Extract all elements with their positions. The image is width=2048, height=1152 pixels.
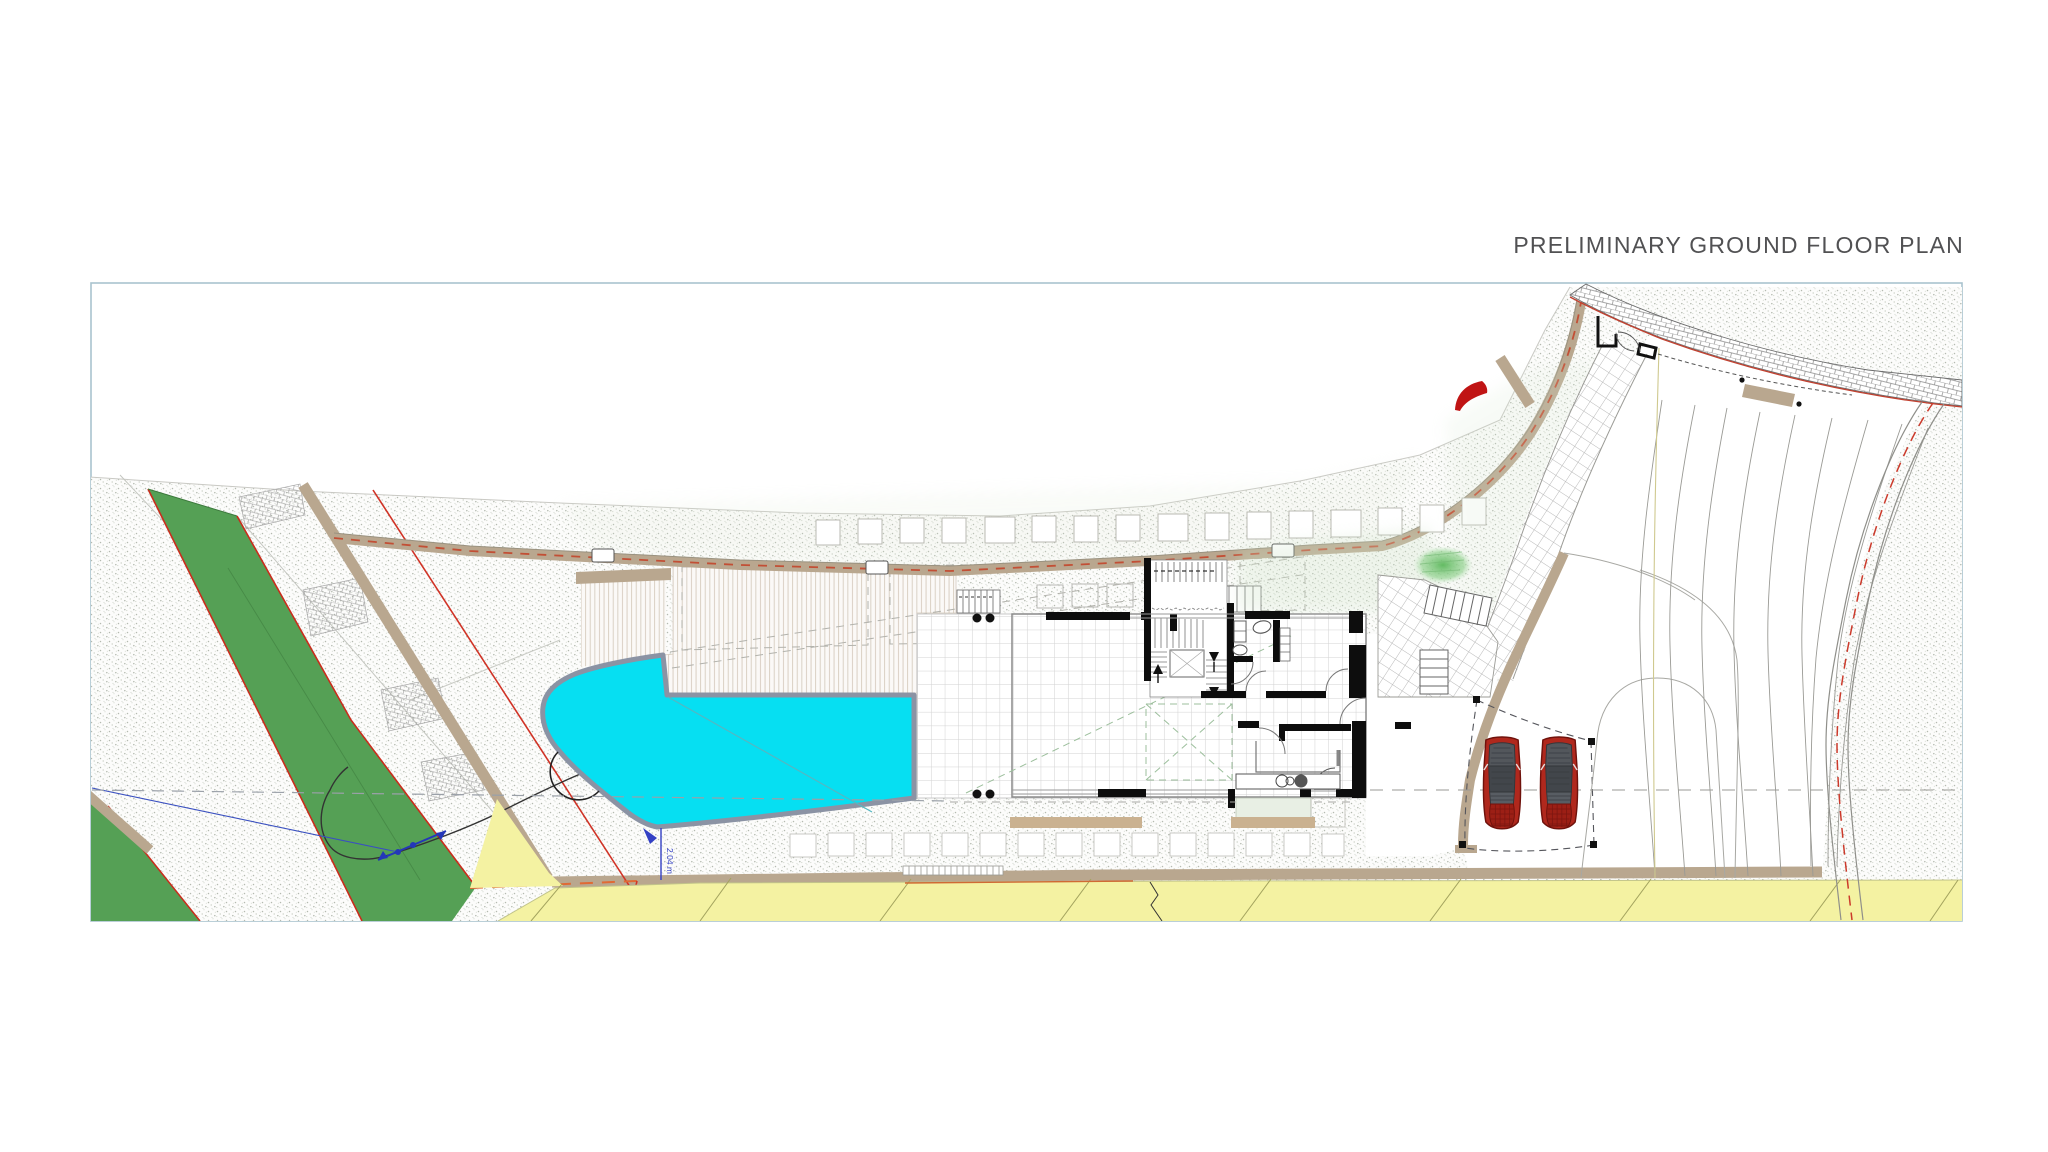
svg-text:2.04 m: 2.04 m <box>665 848 675 874</box>
svg-text:PRELIMINARY GROUND FLOOR PLAN: PRELIMINARY GROUND FLOOR PLAN <box>1513 232 1964 258</box>
